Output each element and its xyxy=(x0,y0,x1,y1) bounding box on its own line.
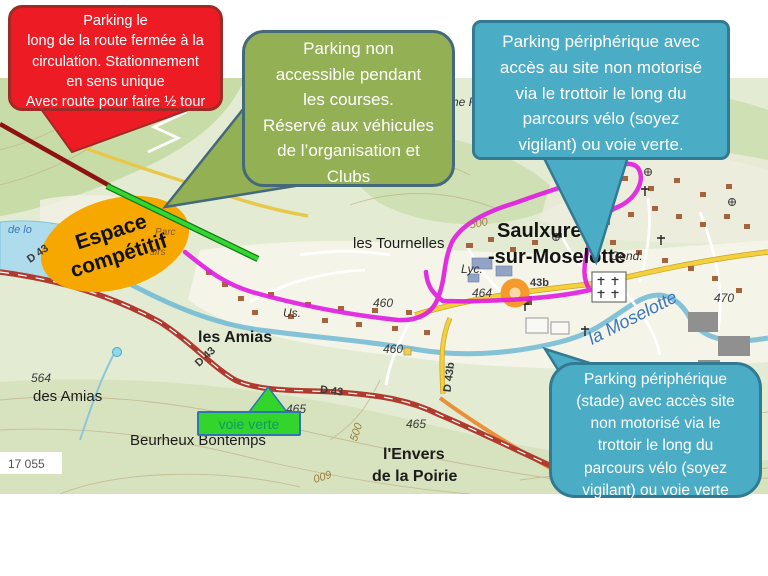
label-sirs-fragment: sirs xyxy=(150,247,166,258)
cemetery xyxy=(592,272,626,302)
label-465-b: 465 xyxy=(406,417,426,431)
label-43b: 43b xyxy=(530,277,549,289)
sheet-number-patch: 17 055 xyxy=(0,452,62,474)
spring-dot xyxy=(113,348,122,357)
label-gend: Gend. xyxy=(610,249,643,263)
green-callout: Parking non accessible pendant les cours… xyxy=(242,30,455,187)
poi-orange-circle-center xyxy=(510,288,521,299)
voie-verte-label: voie verte xyxy=(197,411,301,436)
label-lyc: Lyc. xyxy=(461,262,483,276)
label-envers-line1: l'Envers xyxy=(383,446,445,463)
slide: Espace compétitif Saulxures -sur-Moselot… xyxy=(0,0,768,576)
label-464: 464 xyxy=(472,286,492,300)
label-sheet-number: 17 055 xyxy=(8,457,45,471)
label-460-a: 460 xyxy=(373,296,393,310)
label-envers-line2: de la Poirie xyxy=(372,468,457,485)
label-564: 564 xyxy=(31,371,51,385)
label-us: Us. xyxy=(283,306,301,320)
label-parc-fragment: Parc xyxy=(155,227,176,238)
label-470: 470 xyxy=(714,291,734,305)
label-saulxures-line2: -sur-Moselotte xyxy=(488,246,626,268)
label-les-tournelles: les Tournelles xyxy=(353,235,444,252)
blue-top-callout: Parking périphérique avec accès au site … xyxy=(472,20,730,160)
label-les-amias: les Amias xyxy=(198,329,272,346)
label-des-amias: des Amias xyxy=(33,388,102,405)
marker-square xyxy=(404,348,411,355)
label-de-lo-fragment: de lo xyxy=(8,224,32,236)
red-callout: Parking le long de la route fermée à la … xyxy=(8,5,223,111)
blue-bottom-callout: Parking périphérique (stade) avec accès … xyxy=(549,362,762,498)
label-460-b: 460 xyxy=(383,342,403,356)
